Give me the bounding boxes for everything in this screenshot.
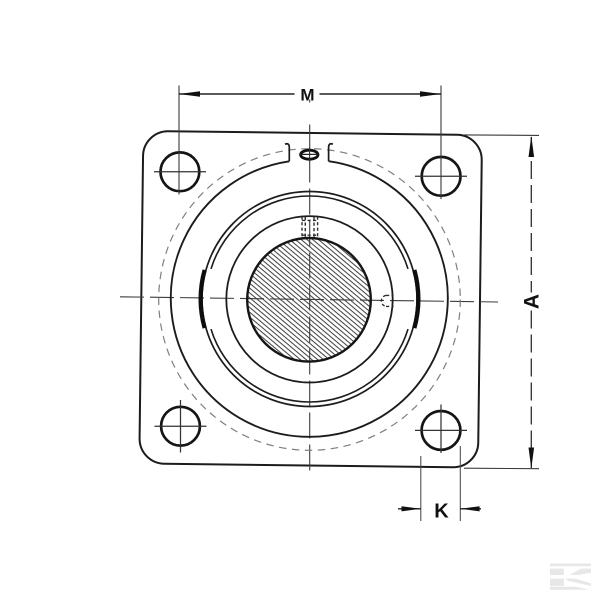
svg-text:M: M [300,85,314,104]
svg-text:K: K [434,500,449,522]
svg-text:A: A [521,294,544,309]
